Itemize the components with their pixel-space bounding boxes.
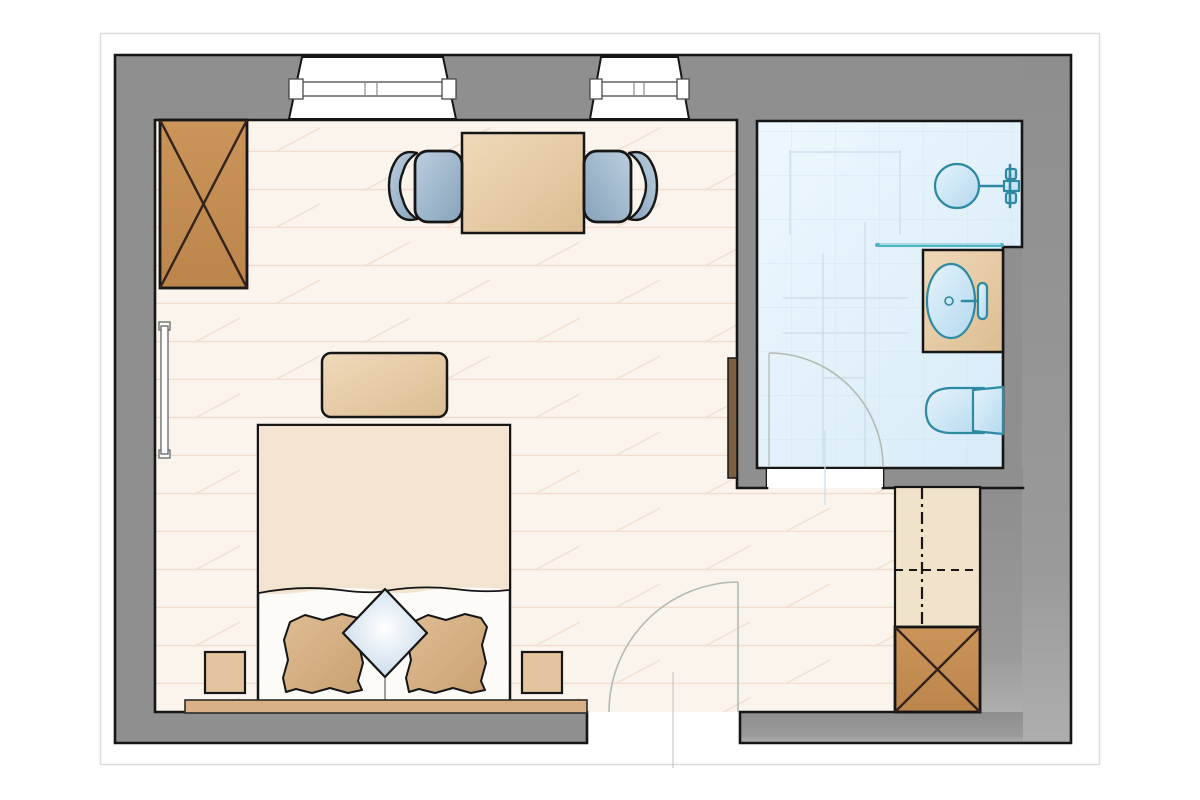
toilet-cistern — [973, 387, 1003, 434]
cabinet-crossed — [895, 627, 980, 712]
floor-plan-svg — [0, 0, 1200, 800]
closet-nook-furniture — [895, 487, 980, 712]
headboard — [185, 700, 587, 713]
window-jamb-block — [442, 79, 456, 99]
sliding-door-panel — [728, 358, 737, 478]
chair-right — [584, 151, 657, 222]
wall-closet — [980, 485, 1022, 712]
wall-bottom-left — [115, 712, 587, 743]
wall-right — [1022, 55, 1071, 743]
window-jamb-block — [590, 79, 602, 99]
window-small — [590, 57, 689, 119]
shelf-unit — [895, 487, 980, 627]
chair-left — [389, 151, 462, 222]
wall-left — [115, 55, 155, 743]
toilet — [926, 387, 1003, 434]
wardrobe-crossed — [160, 120, 247, 288]
sink-faucet — [978, 283, 987, 319]
bed-blanket — [259, 426, 509, 594]
wall-mirror — [159, 322, 170, 458]
wall-bottom-right — [740, 712, 1023, 743]
bench — [322, 353, 447, 417]
wall-bath-stub — [737, 468, 767, 488]
dining-table — [462, 133, 584, 233]
wall-partition — [737, 118, 757, 468]
floor-plan-image — [0, 0, 1200, 800]
nightstand-right — [522, 652, 562, 693]
window-jamb-block — [677, 79, 689, 99]
wall-right-bump — [1003, 247, 1022, 468]
shower-mixer — [1004, 165, 1019, 207]
double-bed — [258, 425, 510, 702]
window-jamb-block — [289, 79, 303, 99]
vanity-sink — [923, 250, 1003, 352]
window-large — [289, 57, 456, 119]
nightstand-left — [205, 652, 245, 693]
